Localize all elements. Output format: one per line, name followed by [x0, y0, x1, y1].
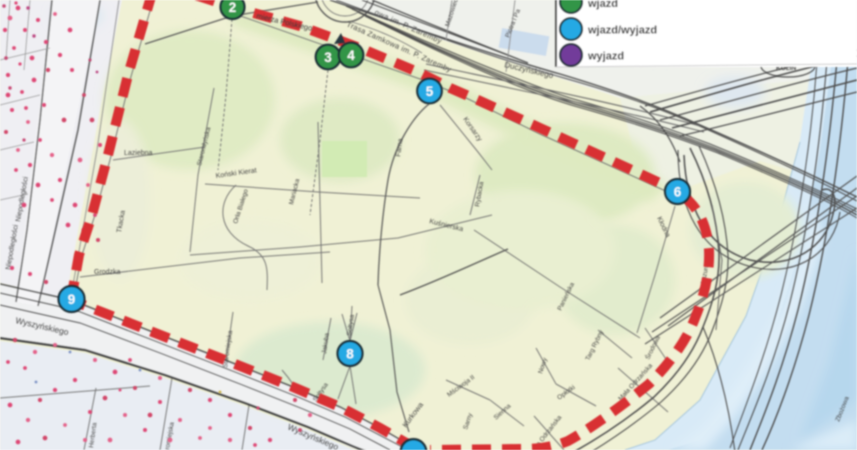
svg-text:5: 5	[426, 84, 434, 99]
svg-text:8: 8	[346, 347, 354, 362]
svg-text:Laziebna: Laziebna	[124, 150, 153, 157]
svg-text:wyjazd: wyjazd	[587, 51, 624, 63]
svg-text:wjazd: wjazd	[587, 0, 618, 10]
svg-text:3: 3	[324, 50, 332, 65]
svg-text:4: 4	[347, 48, 355, 63]
svg-text:9: 9	[68, 292, 76, 307]
svg-text:6: 6	[674, 185, 682, 200]
svg-text:2: 2	[229, 0, 237, 15]
svg-text:Grodzka: Grodzka	[94, 269, 121, 276]
svg-text:wjazd/wyjazd: wjazd/wyjazd	[587, 25, 657, 37]
